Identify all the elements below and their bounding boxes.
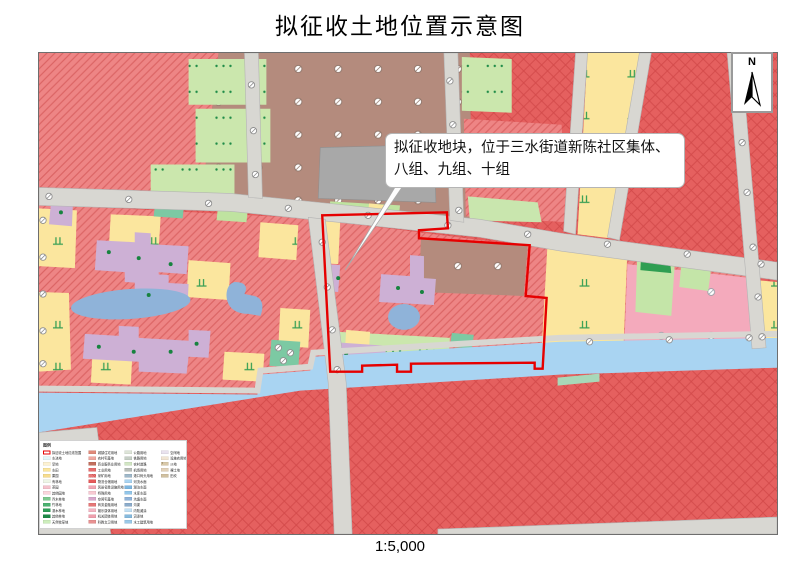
legend-swatch <box>43 520 51 524</box>
legend-label: 公路用地 <box>133 450 146 455</box>
legend-label: 商务金融用地 <box>98 502 118 507</box>
legend-swatch <box>89 497 97 501</box>
legend-label: 果园 <box>52 473 59 478</box>
legend-item: 水工建筑用地 <box>124 519 161 525</box>
callout-line-2: 八组、九组、十组 <box>394 160 676 182</box>
legend-label: 设施农用地 <box>170 456 186 461</box>
legend-label: 港口码头用地 <box>133 473 153 478</box>
callout-line-1: 拟征收地块，位于三水街道新陈社区集体、 <box>394 138 676 160</box>
legend-inner: 图例 拟征收土地红线范围水浇地旱地水田果园有林地茶园其他园地乔木林地竹林地灌木林… <box>40 441 187 529</box>
legend-label: 商业服务业用地 <box>98 461 121 466</box>
legend-label: 其他林地 <box>52 514 65 519</box>
legend-swatch <box>43 450 51 454</box>
legend-label: 采矿用地 <box>98 473 111 478</box>
legend-swatch <box>89 514 97 518</box>
legend-swatch <box>124 491 132 495</box>
legend-label: 田坎 <box>170 473 177 478</box>
legend-swatch <box>89 456 97 460</box>
legend-label: 水工建筑用地 <box>133 519 153 524</box>
legend-label: 空闲地 <box>170 450 180 455</box>
legend-swatch <box>124 509 132 513</box>
legend-label: 灌木林地 <box>52 508 65 513</box>
legend: 图例 拟征收土地红线范围水浇地旱地水田果园有林地茶园其他园地乔木林地竹林地灌木林… <box>39 440 187 529</box>
legend-column: 公路用地铁路用地农村道路机场用地港口码头用地河流水面湖泊水面水库水面坑塘水面沟渠… <box>124 450 161 525</box>
callout: 拟征收地块，位于三水街道新陈社区集体、 八组、九组、十组 <box>385 133 685 188</box>
legend-label: 天然牧草地 <box>52 519 68 524</box>
legend-swatch <box>124 503 132 507</box>
legend-swatch <box>43 491 51 495</box>
legend-label: 特殊用地 <box>98 490 111 495</box>
legend-swatch <box>124 468 132 472</box>
legend-label: 有林地 <box>52 479 62 484</box>
legend-swatch <box>161 456 169 460</box>
legend-label: 机关团体用地 <box>98 514 118 519</box>
legend-label: 物流仓储用地 <box>98 479 118 484</box>
legend-label: 旱地 <box>52 461 59 466</box>
legend-label: 坑塘水面 <box>133 496 146 501</box>
north-arrow-icon <box>739 69 765 109</box>
legend-column: 拟征收土地红线范围水浇地旱地水田果园有林地茶园其他园地乔木林地竹林地灌木林地其他… <box>43 450 89 525</box>
legend-label: 空闲宅基地 <box>98 496 114 501</box>
legend-label: 农村道路 <box>133 461 146 466</box>
legend-swatch <box>89 503 97 507</box>
land-acquisition-map-page: 拟征收土地位置示意图 <box>0 0 800 565</box>
legend-label: 竹林地 <box>52 502 62 507</box>
legend-swatch <box>124 520 132 524</box>
legend-column: 城镇住宅用地农村宅基地商业服务业用地工业用地采矿用地物流仓储用地风景名胜设施用地… <box>89 450 125 525</box>
north-arrow: N <box>731 52 773 113</box>
legend-label: 河流水面 <box>133 479 146 484</box>
legend-swatch <box>161 468 169 472</box>
legend-label: 农村宅基地 <box>98 456 114 461</box>
legend-swatch <box>89 485 97 489</box>
legend-swatch <box>161 474 169 478</box>
legend-label: 湖泊水面 <box>133 485 146 490</box>
legend-label: 沙地 <box>170 461 177 466</box>
legend-label: 裸土地 <box>170 467 180 472</box>
legend-swatch <box>89 474 97 478</box>
legend-label: 拟征收土地红线范围 <box>52 450 81 455</box>
legend-swatch <box>43 462 51 466</box>
legend-swatch <box>124 514 132 518</box>
legend-label: 茶园 <box>52 485 59 490</box>
legend-swatch <box>89 480 97 484</box>
legend-label: 城镇住宅用地 <box>98 450 118 455</box>
legend-swatch <box>43 485 51 489</box>
legend-label: 风景名胜设施用地 <box>98 485 124 490</box>
legend-label: 水田 <box>52 467 59 472</box>
legend-label: 娱乐康体用地 <box>98 508 118 513</box>
scale-label: 1:5,000 <box>0 538 800 555</box>
legend-swatch <box>124 456 132 460</box>
legend-label: 铁路用地 <box>133 456 146 461</box>
legend-swatch <box>124 462 132 466</box>
legend-item: 田坎 <box>161 473 187 479</box>
page-title: 拟征收土地位置示意图 <box>0 7 800 41</box>
legend-swatch <box>43 497 51 501</box>
legend-swatch <box>43 474 51 478</box>
legend-label: 沼泽地 <box>133 514 143 519</box>
legend-swatch <box>161 462 169 466</box>
legend-swatch <box>89 509 97 513</box>
legend-swatch <box>124 451 132 455</box>
legend-label: 沟渠 <box>133 502 140 507</box>
legend-label: 其他园地 <box>52 490 65 495</box>
legend-entries: 拟征收土地红线范围水浇地旱地水田果园有林地茶园其他园地乔木林地竹林地灌木林地其他… <box>43 450 187 525</box>
legend-swatch <box>43 468 51 472</box>
legend-swatch <box>124 497 132 501</box>
legend-swatch <box>43 514 51 518</box>
legend-swatch <box>89 520 97 524</box>
legend-label: 水浇地 <box>52 456 62 461</box>
legend-item: 天然牧草地 <box>43 519 89 525</box>
north-label: N <box>733 56 771 69</box>
legend-swatch <box>43 456 51 460</box>
legend-label: 水库水面 <box>133 490 146 495</box>
legend-swatch <box>89 491 97 495</box>
legend-label: 机场用地 <box>133 467 146 472</box>
legend-label: 乔木林地 <box>52 496 65 501</box>
legend-item: 科教文卫用地 <box>89 519 125 525</box>
legend-label: 内陆滩涂 <box>133 508 146 513</box>
legend-swatch <box>43 480 51 484</box>
legend-swatch <box>124 474 132 478</box>
legend-label: 工业用地 <box>98 467 111 472</box>
legend-swatch <box>89 462 97 466</box>
legend-label: 科教文卫用地 <box>98 519 118 524</box>
legend-swatch <box>43 503 51 507</box>
legend-title: 图例 <box>43 443 187 449</box>
legend-swatch <box>89 468 97 472</box>
legend-swatch <box>124 485 132 489</box>
legend-swatch <box>43 509 51 513</box>
legend-swatch <box>161 451 169 455</box>
legend-swatch <box>89 451 97 455</box>
legend-column: 空闲地设施农用地沙地裸土地田坎 <box>161 450 187 525</box>
legend-swatch <box>124 480 132 484</box>
